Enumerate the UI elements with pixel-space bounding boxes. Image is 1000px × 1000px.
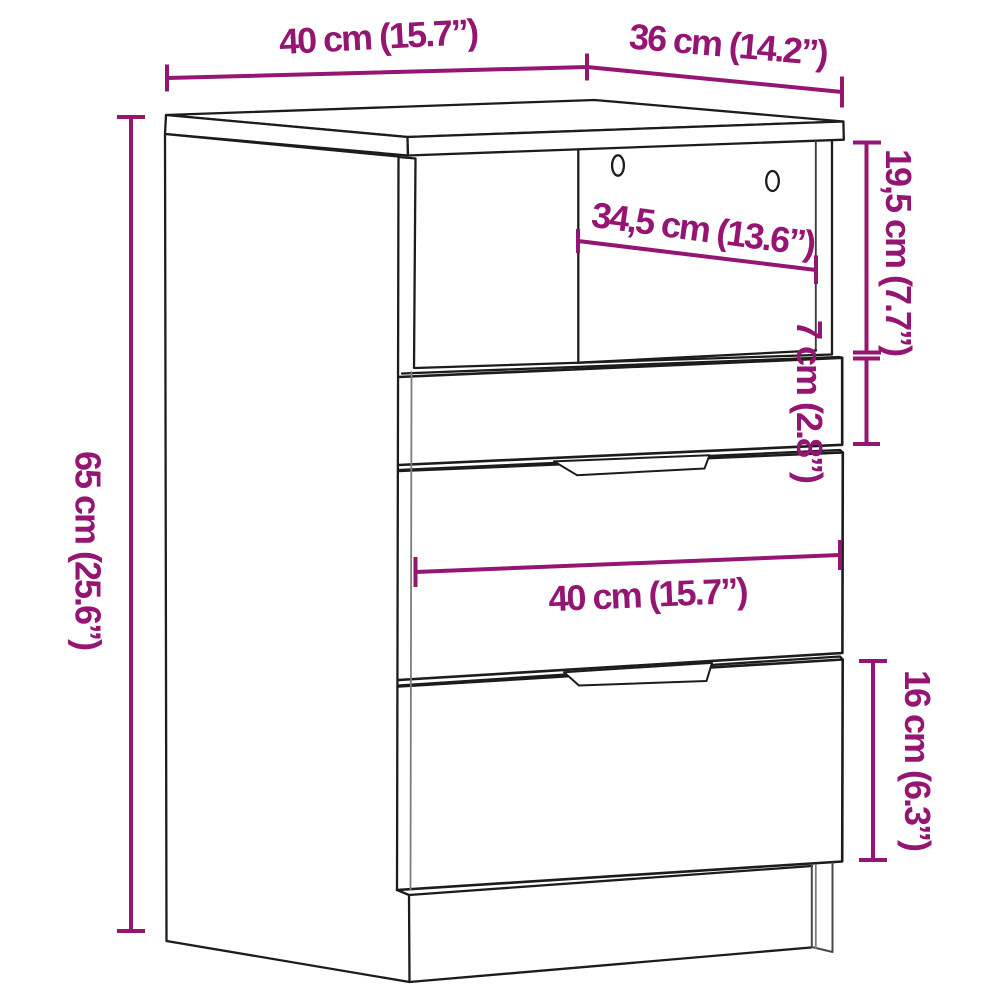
- svg-text:36 cm (14.2”): 36 cm (14.2”): [628, 15, 830, 73]
- svg-text:34,5 cm (13.6”): 34,5 cm (13.6”): [589, 194, 818, 264]
- svg-text:16 cm (6.3”): 16 cm (6.3”): [897, 670, 938, 851]
- svg-text:65 cm (25.6”): 65 cm (25.6”): [68, 451, 109, 650]
- svg-text:19,5 cm (7.7”): 19,5 cm (7.7”): [878, 149, 919, 356]
- svg-text:40 cm (15.7”): 40 cm (15.7”): [278, 11, 479, 62]
- svg-text:40 cm (15.7”): 40 cm (15.7”): [548, 570, 749, 620]
- svg-text:7 cm (2.8”): 7 cm (2.8”): [789, 320, 830, 483]
